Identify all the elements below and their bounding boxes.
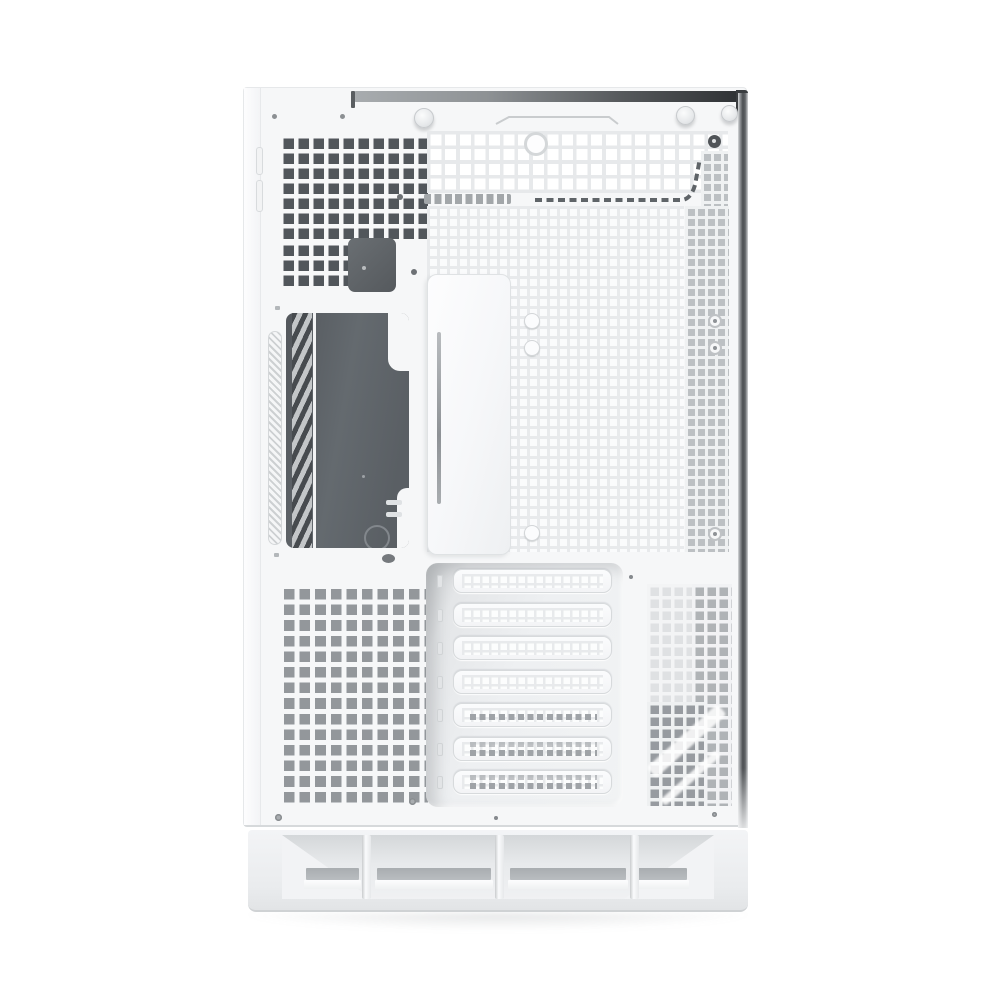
window-slot	[386, 500, 402, 505]
oval-hole	[382, 554, 395, 563]
panel-screw-icon	[712, 812, 717, 817]
bottom-right-mesh	[647, 584, 732, 806]
rivet-icon	[340, 114, 345, 119]
pci-slot-cover	[453, 670, 612, 694]
top-panel-seam	[351, 91, 355, 108]
pci-slot-cover	[453, 569, 612, 593]
pci-slot-cover	[453, 603, 612, 627]
base-vent-slot	[377, 868, 491, 880]
slot-vent-perforation	[462, 675, 603, 689]
panel-screw-icon	[411, 269, 417, 275]
slot-vent-perforation	[462, 641, 603, 655]
window-step	[397, 488, 409, 548]
product-photo-stage	[0, 0, 1000, 1000]
pci-slot-cover	[453, 770, 612, 794]
standoff-button	[524, 525, 540, 541]
rear-edge-dark-bar	[738, 93, 748, 828]
grommet-ring	[708, 527, 722, 541]
base-divider-fin	[362, 835, 371, 899]
bracket-groove	[437, 332, 441, 504]
dark-screw-icon	[708, 135, 721, 148]
emboss-chevron-line	[496, 117, 618, 124]
right-mesh-strip	[685, 206, 729, 552]
slot-vent-perforation	[462, 574, 603, 588]
edge-tab	[256, 180, 263, 212]
edge-tab	[256, 147, 263, 175]
case-base-pedestal	[248, 830, 748, 912]
recess-left-wall	[282, 835, 372, 899]
small-io-cutout	[348, 238, 396, 292]
thumbscrew-icon	[676, 106, 695, 125]
slot-dot-row	[470, 775, 597, 780]
base-vent-slot	[510, 868, 626, 880]
stamp-mark	[274, 553, 279, 557]
right-mesh-corner	[701, 151, 728, 206]
base-divider-fin	[495, 835, 504, 899]
base-divider-fin	[630, 835, 639, 899]
pci-slot-cover	[453, 737, 612, 761]
slot-dot-row	[470, 742, 597, 747]
vertical-bracket-bar	[427, 274, 511, 555]
vent-dash-row	[424, 194, 511, 204]
slot-dot-row	[470, 714, 597, 720]
window-ring	[364, 525, 390, 548]
pci-slot-cover	[453, 703, 612, 727]
panel-screw-icon	[275, 814, 282, 821]
slot-dot-row	[470, 783, 597, 789]
ladder-vent-strip	[292, 313, 312, 548]
panel-screw-icon	[409, 798, 416, 805]
thumbscrew-icon	[721, 105, 738, 122]
bottom-left-vent-grid	[279, 584, 428, 803]
top-bright-mesh	[427, 131, 728, 193]
slot-dot-row	[470, 750, 597, 756]
standoff-button	[524, 313, 540, 329]
window-divider	[313, 313, 316, 548]
rivet-icon	[272, 114, 277, 119]
panel-screw-icon	[494, 816, 498, 820]
fan-mount-hole	[524, 132, 548, 156]
thumbscrew-icon	[414, 108, 434, 128]
stamp-mark	[275, 306, 280, 310]
standoff-button	[524, 340, 540, 356]
grommet-ring	[708, 314, 722, 328]
slot-vent-perforation	[462, 608, 603, 622]
base-vent-recess	[282, 835, 714, 899]
side-hatch-vent	[268, 331, 282, 545]
cutout-screw-icon	[362, 266, 366, 270]
panel-screw-icon	[629, 575, 633, 579]
top-left-vent-grid	[279, 134, 428, 241]
window-notch	[388, 313, 409, 371]
panel-screw-icon	[397, 194, 403, 200]
top-panel-dark-edge	[354, 91, 738, 102]
pci-slot-cover	[453, 636, 612, 660]
floor-shadow	[238, 913, 758, 931]
pci-slot-recess	[426, 563, 623, 807]
psu-tray-window	[286, 313, 409, 548]
grommet-ring	[708, 341, 722, 355]
top-left-vent-grid-lower	[279, 241, 355, 289]
base-vent-slot	[637, 868, 687, 880]
window-slot	[386, 512, 402, 517]
window-speck	[362, 475, 365, 478]
base-vent-slot	[306, 868, 359, 880]
pc-case-side-panel	[243, 87, 747, 827]
